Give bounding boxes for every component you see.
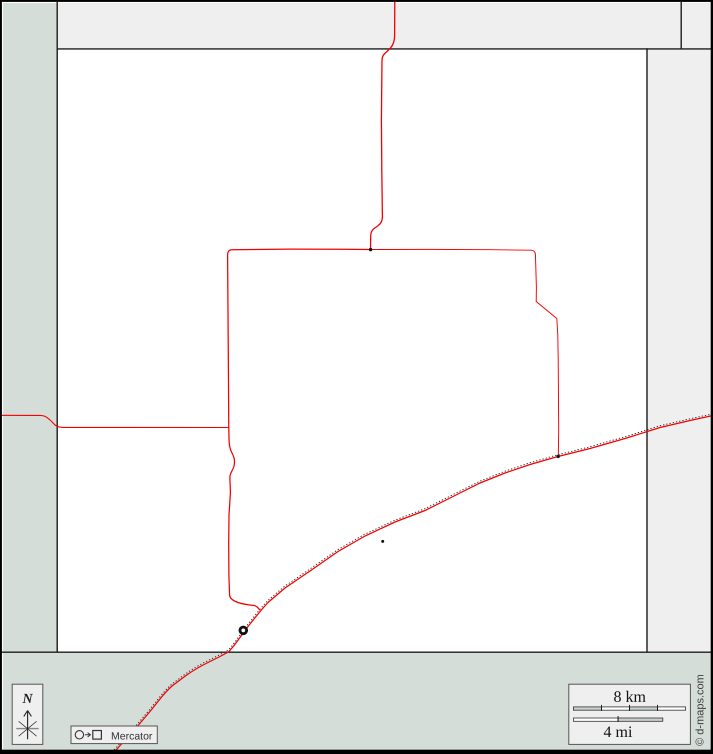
svg-text:8 km: 8 km [613,689,646,706]
svg-text:Mercator: Mercator [111,731,153,743]
svg-text:N: N [21,692,33,707]
svg-text:© d-maps.com: © d-maps.com [695,674,707,746]
svg-text:4 mi: 4 mi [604,724,633,741]
